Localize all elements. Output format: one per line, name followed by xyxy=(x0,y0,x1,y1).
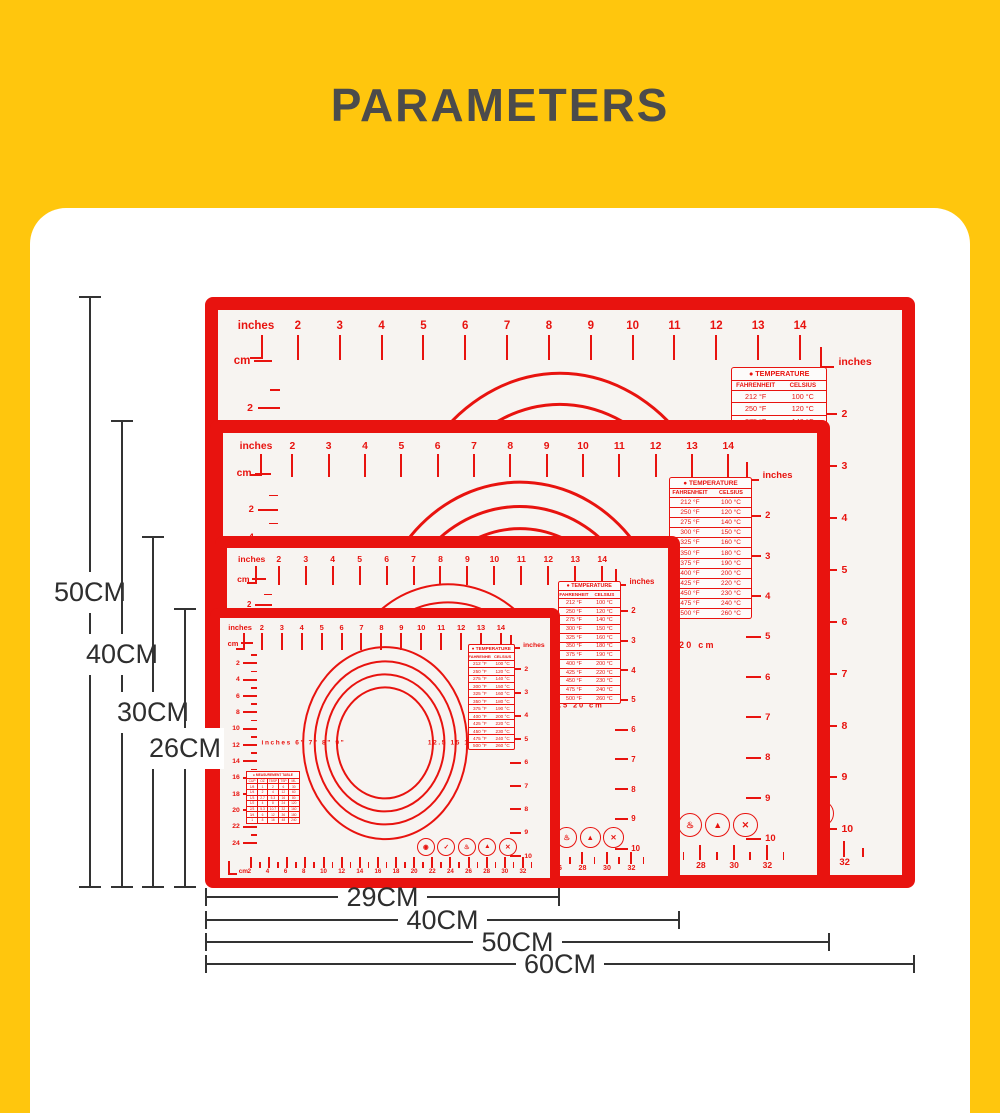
column-header: FAHRENHEIT xyxy=(670,489,711,497)
temperature-row: 400 °F200 °C xyxy=(469,712,515,719)
dimension-line xyxy=(207,941,473,943)
dimension-line xyxy=(207,919,398,921)
temperature-row: 250 °F120 °C xyxy=(469,667,515,674)
temperature-row: 212 °F100 °C xyxy=(559,598,620,607)
dimension-line xyxy=(89,298,91,572)
baking-mat-29x26cm: inches 234567891011121314 cm 2 4 6 8 10 … xyxy=(210,608,560,888)
column-header: ML xyxy=(288,779,298,784)
measurement-row: 1/24824120 xyxy=(247,800,298,806)
dimension-endcap xyxy=(79,886,101,888)
temperature-row: 300 °F150 °C xyxy=(670,527,752,537)
temperature-table-title: ● TEMPERATURE xyxy=(670,478,752,488)
mat-print-surface: inches 234567891011121314 cm 2 4 6 8 10 … xyxy=(220,618,550,878)
column-header: CELSIUS xyxy=(779,381,826,390)
column-header: FAHRENHEIT xyxy=(732,381,779,390)
measurement-table-title: ● MEASUREMENT TABLE xyxy=(247,772,298,777)
size-guide-circle xyxy=(336,686,434,799)
heat-resistant-flame-icon: ▲ xyxy=(478,838,496,856)
no-knife-icon: ✕ xyxy=(733,813,758,838)
heat-resistant-flame-icon: ▲ xyxy=(580,827,601,848)
column-header: TBSP xyxy=(267,779,277,784)
temperature-row: 500 °F260 °C xyxy=(559,694,620,703)
dimension-label: 26CM xyxy=(146,728,224,769)
dimension-label: 30CM xyxy=(114,692,192,733)
temperature-row: 212 °F100 °C xyxy=(469,660,515,667)
dimension-label: 60CM xyxy=(516,949,604,980)
dimension-endcap xyxy=(828,933,830,951)
temperature-row: 450 °F230 °C xyxy=(469,727,515,734)
measurement-table: ● MEASUREMENT TABLE CUPOZTBSPTSPML 1/812… xyxy=(246,771,299,823)
measurement-row: 1/812630 xyxy=(247,783,298,789)
no-knife-icon: ✕ xyxy=(499,838,517,856)
measurement-row: 181648240 xyxy=(247,817,298,823)
dimension-line xyxy=(184,769,186,887)
parameters-infographic: { "title": "PARAMETERS", "colors": { "ba… xyxy=(0,0,1000,1113)
temperature-row: 425 °F220 °C xyxy=(559,668,620,677)
measurement-row: 3/461236180 xyxy=(247,811,298,817)
temperature-table-title: ● TEMPERATURE xyxy=(559,582,620,591)
page-title: PARAMETERS xyxy=(0,78,1000,132)
temperature-row: 325 °F160 °C xyxy=(670,537,752,547)
temperature-row: 400 °F200 °C xyxy=(559,659,620,668)
measurement-row: 1/32.75.31680 xyxy=(247,795,298,801)
dimension-line xyxy=(152,538,154,692)
temperature-row: 425 °F220 °C xyxy=(469,719,515,726)
dimension-endcap xyxy=(678,911,680,929)
measurement-row: 1/4241260 xyxy=(247,789,298,795)
dimension-line xyxy=(121,422,123,634)
measurement-row: 2/35.310.732160 xyxy=(247,806,298,812)
temperature-row: 475 °F240 °C xyxy=(469,734,515,741)
temperature-row: 350 °F180 °C xyxy=(559,642,620,651)
temperature-row: 275 °F140 °C xyxy=(670,517,752,527)
dimension-line xyxy=(604,963,913,965)
temperature-row: 300 °F150 °C xyxy=(559,624,620,633)
circle-inch-labels: inches 6" 7" 8" 9" xyxy=(256,739,345,746)
dimension-line xyxy=(207,896,338,898)
temperature-row: 250 °F120 °C xyxy=(732,402,826,414)
temperature-row: 375 °F190 °C xyxy=(469,704,515,711)
temperature-row: 325 °F160 °C xyxy=(559,633,620,642)
column-header: CELSIUS xyxy=(710,489,751,497)
dimension-line xyxy=(207,963,516,965)
column-header: TSP xyxy=(278,779,288,784)
dimension-line xyxy=(562,941,828,943)
temperature-row: 275 °F140 °C xyxy=(469,675,515,682)
temperature-table: ● TEMPERATURE FAHRENHEITCELSIUS 212 °F10… xyxy=(558,581,621,704)
dimension-line xyxy=(184,610,186,728)
temperature-row: 325 °F160 °C xyxy=(469,689,515,696)
temperature-row: 500 °F260 °C xyxy=(670,608,752,618)
dimension-endcap xyxy=(111,886,133,888)
temperature-row: 475 °F240 °C xyxy=(670,598,752,608)
lfgb-badge-icon: ◉ xyxy=(417,838,435,856)
temperature-table-title: ● TEMPERATURE xyxy=(732,368,826,381)
temperature-row: 350 °F180 °C xyxy=(469,697,515,704)
no-knife-icon: ✕ xyxy=(603,827,624,848)
temperature-row: 212 °F100 °C xyxy=(732,390,826,402)
column-header: CELSIUS xyxy=(589,591,619,597)
temperature-row: 450 °F230 °C xyxy=(670,588,752,598)
temperature-row: 475 °F240 °C xyxy=(559,685,620,694)
oven-safe-icon: ♨ xyxy=(678,813,703,838)
temperature-table: ● TEMPERATURE FAHRENHEITCELSIUS 212 °F10… xyxy=(669,477,753,619)
temperature-row: 212 °F100 °C xyxy=(670,497,752,507)
column-header: CELSIUS xyxy=(491,653,514,659)
dimension-endcap xyxy=(174,886,196,888)
column-header: FAHRENHEIT xyxy=(559,591,589,597)
temperature-row: 250 °F120 °C xyxy=(670,507,752,517)
temperature-row: 375 °F190 °C xyxy=(559,650,620,659)
temperature-row: 450 °F230 °C xyxy=(559,676,620,685)
food-grade-check-icon: ✓ xyxy=(437,838,455,856)
column-header: CUP xyxy=(247,779,256,784)
column-header: FAHRENHEIT xyxy=(469,653,492,659)
dimension-line xyxy=(487,919,678,921)
dimension-label: 40CM xyxy=(83,634,161,675)
dimension-endcap xyxy=(913,955,915,973)
temperature-row: 375 °F190 °C xyxy=(670,558,752,568)
temperature-row: 300 °F150 °C xyxy=(469,682,515,689)
temperature-row: 400 °F200 °C xyxy=(670,568,752,578)
dimension-line xyxy=(427,896,558,898)
heat-resistant-flame-icon: ▲ xyxy=(705,813,730,838)
temperature-row: 500 °F260 °C xyxy=(469,742,515,749)
temperature-row: 275 °F140 °C xyxy=(559,615,620,624)
temperature-row: 250 °F120 °C xyxy=(559,607,620,616)
dimension-endcap xyxy=(142,886,164,888)
certification-icons: ◉✓♨▲✕ xyxy=(417,838,517,856)
dimension-label: 50CM xyxy=(51,572,129,613)
temperature-table-title: ● TEMPERATURE xyxy=(469,645,515,652)
column-header: OZ xyxy=(257,779,267,784)
temperature-row: 425 °F220 °C xyxy=(670,578,752,588)
temperature-row: 350 °F180 °C xyxy=(670,547,752,557)
oven-safe-icon: ♨ xyxy=(458,838,476,856)
dimension-endcap xyxy=(558,888,560,906)
temperature-table: ● TEMPERATURE FAHRENHEITCELSIUS 212 °F10… xyxy=(468,644,516,750)
